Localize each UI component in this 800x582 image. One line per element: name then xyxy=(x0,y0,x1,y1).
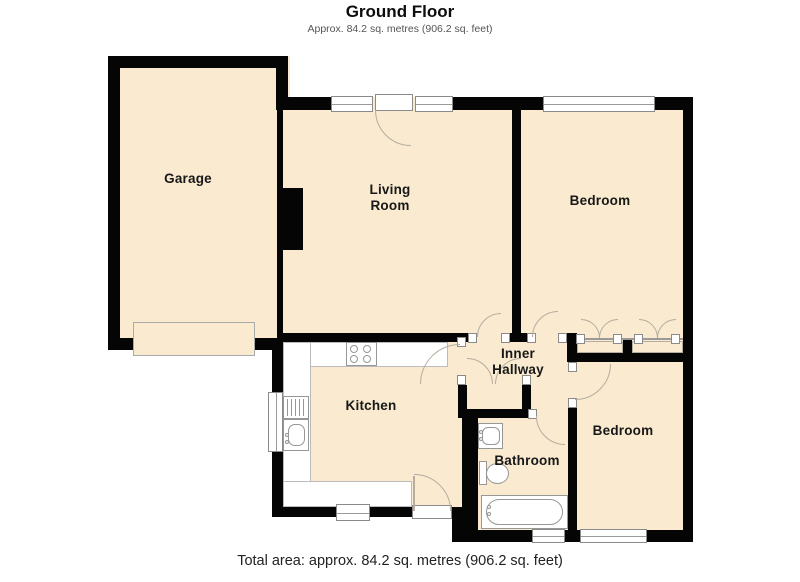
door-leaf-line xyxy=(413,476,415,511)
tap xyxy=(479,437,483,441)
room-label-inner-hallway: Inner Hallway xyxy=(492,346,544,378)
wall xyxy=(567,353,693,362)
room-label-bathroom: Bathroom xyxy=(494,453,559,469)
tap xyxy=(285,433,289,437)
window xyxy=(415,96,453,112)
room-label-garage: Garage xyxy=(164,171,212,187)
window xyxy=(532,529,565,543)
window xyxy=(331,96,373,112)
total-area-text: Total area: approx. 84.2 sq. metres (906… xyxy=(0,553,800,569)
door-jamb xyxy=(468,333,477,343)
hob-burner xyxy=(350,345,358,353)
window xyxy=(580,529,647,543)
window xyxy=(336,504,370,521)
wall xyxy=(683,97,693,542)
chimney-breast xyxy=(283,188,303,250)
tap xyxy=(487,512,491,516)
wardrobe-front-line xyxy=(577,338,683,340)
tap xyxy=(285,440,289,444)
drainer-groove xyxy=(295,399,296,416)
wall xyxy=(108,56,120,350)
hob-burner xyxy=(350,355,358,363)
bathroom-basin xyxy=(482,427,500,445)
main-block-floor xyxy=(277,97,693,350)
drainer-groove xyxy=(291,399,292,416)
room-label-bedroom-bottom: Bedroom xyxy=(593,423,654,439)
kitchen-sink-basin xyxy=(288,424,305,446)
front-door-leaf xyxy=(375,94,413,111)
wall xyxy=(512,110,521,333)
wall xyxy=(108,56,288,68)
garage-floor xyxy=(108,56,290,350)
room-label-living-room: Living Room xyxy=(370,182,411,214)
drainer-groove xyxy=(303,399,304,416)
wall xyxy=(462,418,478,513)
bathtub-inner xyxy=(486,499,563,525)
wall xyxy=(458,409,531,418)
page-subtitle: Approx. 84.2 sq. metres (906.2 sq. feet) xyxy=(0,23,800,35)
page-title: Ground Floor xyxy=(0,2,800,22)
wall xyxy=(565,530,580,542)
wall xyxy=(647,530,693,542)
garage-door xyxy=(133,322,255,356)
door-jamb xyxy=(528,409,537,419)
wall xyxy=(272,350,283,392)
tap xyxy=(487,505,491,509)
wall xyxy=(277,333,468,342)
drainer-groove xyxy=(287,399,288,416)
room-label-bedroom-top: Bedroom xyxy=(570,193,631,209)
wall xyxy=(568,407,577,535)
hob-burner xyxy=(363,345,371,353)
wall xyxy=(277,97,331,110)
room-label-kitchen: Kitchen xyxy=(346,398,397,414)
hob-burner xyxy=(363,355,371,363)
door-jamb xyxy=(558,333,567,343)
wall xyxy=(453,97,543,110)
floor-plan: Ground Floor Approx. 84.2 sq. metres (90… xyxy=(0,0,800,582)
door-jamb xyxy=(501,333,510,343)
drainer-groove xyxy=(299,399,300,416)
window xyxy=(268,392,283,452)
tap xyxy=(479,430,483,434)
window xyxy=(543,96,655,112)
